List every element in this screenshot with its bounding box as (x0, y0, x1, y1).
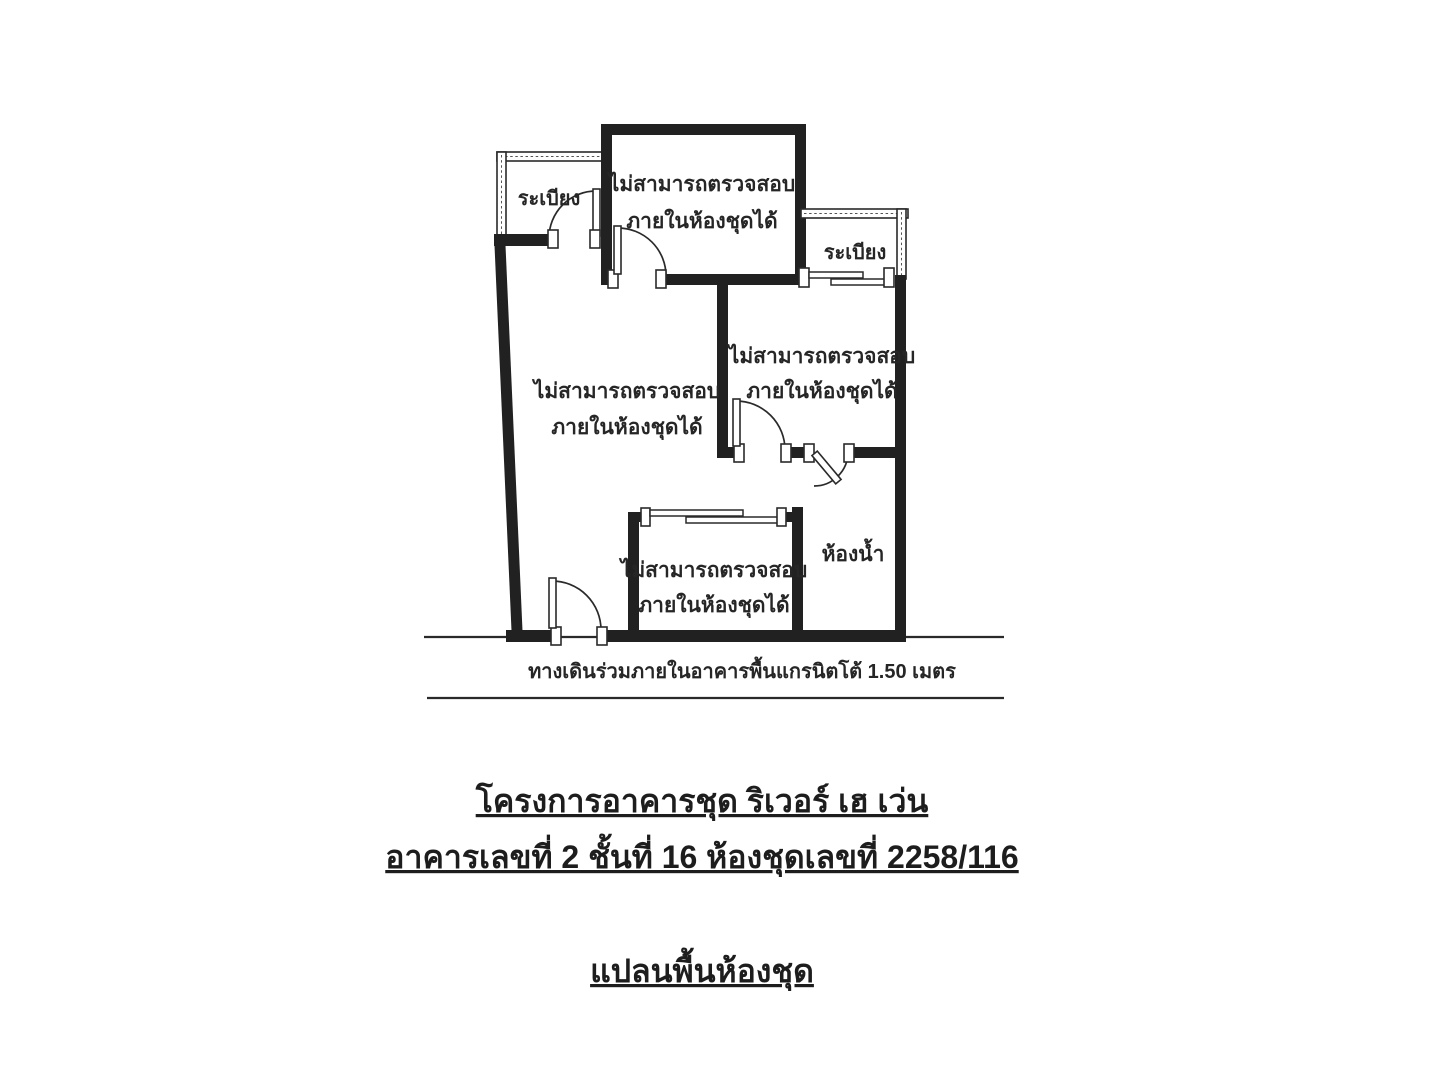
bottom-room-label-line1: ไม่สามารถตรวจสอบ (619, 557, 807, 582)
right-room-label-line1: ไม่สามารถตรวจสอบ (727, 343, 915, 368)
top-room-label-line2: ภายในห้องชุดได้ (626, 208, 777, 235)
scanned-floor-plan-document: ระเบียง ระเบียง ไม่สามารถตรวจสอบ ภายในห้… (0, 0, 1440, 1080)
main-room-slanted-wall (494, 234, 523, 642)
bathroom-label: ห้องน้ำ (822, 538, 885, 566)
top-room-walls (601, 124, 806, 285)
right-room-label-line2: ภายในห้องชุดได้ (746, 378, 897, 405)
corridor-note: ทางเดินร่วมภายในอาคารพื้นแกรนิตโต้ 1.50 … (528, 656, 956, 683)
balcony-left-label: ระเบียง (518, 187, 581, 210)
drawing-type-title: แปลนพื้นห้องชุด (590, 947, 814, 992)
main-room-label-line1: ไม่สามารถตรวจสอบ (532, 378, 720, 403)
balcony-right-label: ระเบียง (824, 241, 887, 264)
main-room-label-line2: ภายในห้องชุดได้ (551, 414, 702, 441)
door-entry (549, 578, 607, 645)
door-top-room (608, 226, 666, 288)
top-room-label-line1: ไม่สามารถตรวจสอบ (607, 171, 795, 196)
door-bathroom (804, 444, 854, 486)
project-name-title: โครงการอาคารชุด ริเวอร์ เฮ เว่น (475, 782, 929, 822)
bottom-room-label-line2: ภายในห้องชุดได้ (638, 592, 789, 619)
unit-info-title: อาคารเลขที่ 2 ชั้นที่ 16 ห้องชุดเลขที่ 2… (385, 833, 1018, 878)
sliding-door-balcony-right (799, 268, 894, 287)
sliding-door-bottom-room (641, 508, 786, 526)
floor-plan-drawing: ระเบียง ระเบียง ไม่สามารถตรวจสอบ ภายในห้… (0, 0, 1440, 1080)
door-right-room (733, 399, 791, 462)
